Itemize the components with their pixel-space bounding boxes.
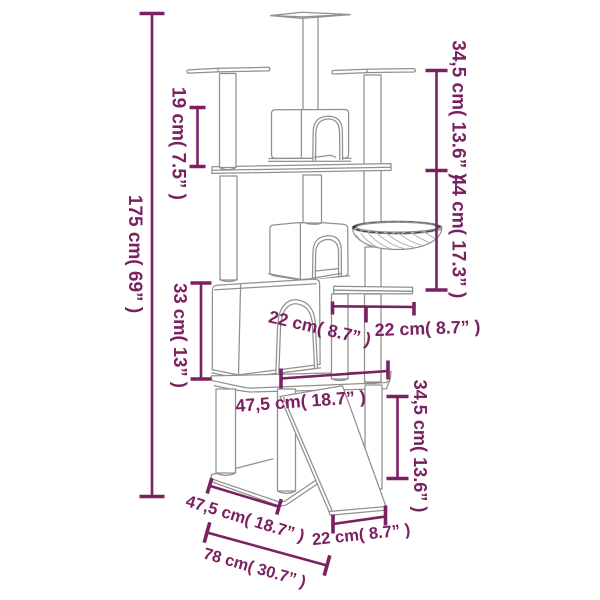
svg-text:34,5 cm( 13.6” ): 34,5 cm( 13.6” ) bbox=[410, 380, 430, 513]
svg-text:22 cm( 8.7” ): 22 cm( 8.7” ) bbox=[311, 520, 411, 549]
svg-text:78 cm( 30.7” ): 78 cm( 30.7” ) bbox=[201, 545, 308, 591]
svg-text:34,5 cm( 13.6” ): 34,5 cm( 13.6” ) bbox=[448, 40, 469, 179]
svg-text:44 cm( 17.3” ): 44 cm( 17.3” ) bbox=[448, 175, 469, 299]
svg-text:33 cm( 13” ): 33 cm( 13” ) bbox=[170, 283, 191, 388]
svg-text:19 cm( 7.5” ): 19 cm( 7.5” ) bbox=[168, 87, 189, 200]
svg-text:22 cm( 8.7” ): 22 cm( 8.7” ) bbox=[374, 316, 480, 340]
svg-text:175 cm( 69” ): 175 cm( 69” ) bbox=[124, 195, 145, 313]
